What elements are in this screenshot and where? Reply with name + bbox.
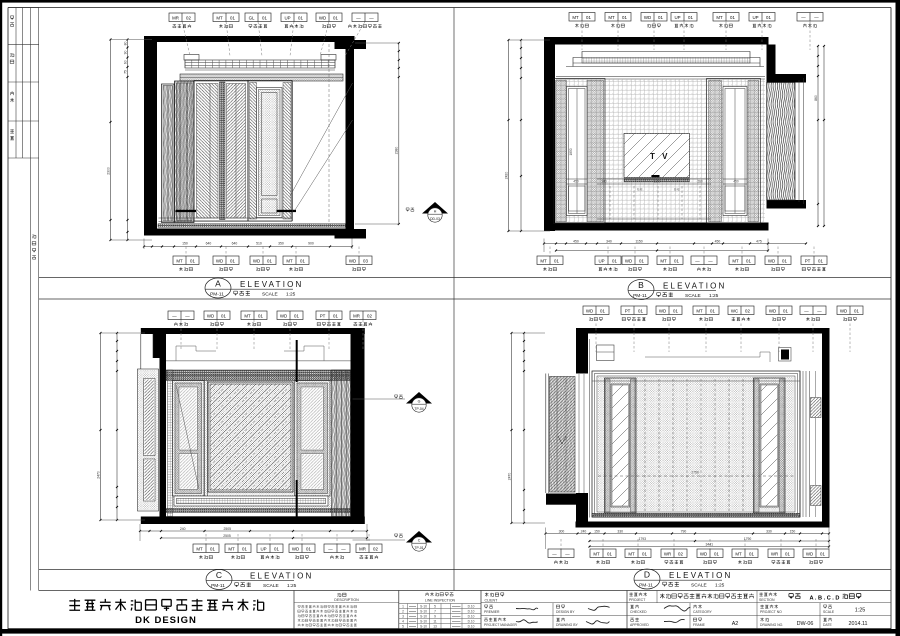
svg-text:01: 01 [306, 546, 311, 551]
svg-text:2380: 2380 [395, 147, 399, 155]
svg-text:2750: 2750 [691, 471, 699, 475]
svg-text:01: 01 [607, 551, 612, 556]
svg-text:WD: WD [625, 258, 632, 263]
svg-text:ELEVATION: ELEVATION [240, 280, 304, 289]
svg-text:PT: PT [320, 313, 326, 318]
svg-text:WD: WD [216, 258, 223, 263]
svg-text:—: — [341, 546, 346, 551]
svg-text:5: 5 [402, 624, 404, 628]
svg-text:01: 01 [333, 15, 338, 20]
svg-text:01: 01 [612, 258, 617, 263]
svg-text:340: 340 [601, 180, 607, 184]
svg-text:01: 01 [766, 15, 771, 20]
svg-text:TP-04: TP-04 [414, 407, 423, 411]
svg-text:01: 01 [638, 308, 643, 313]
svg-text:S-10: S-10 [420, 604, 427, 608]
svg-text:PREMIER: PREMIER [484, 610, 500, 614]
svg-text:WD: WD [769, 308, 776, 313]
svg-text:S-10: S-10 [420, 609, 427, 613]
svg-text:A . B . C . D: A . B . C . D [810, 595, 840, 601]
svg-text:—: — [185, 313, 190, 318]
svg-text:2420: 2420 [504, 172, 508, 180]
svg-text:D.10: D.10 [468, 624, 475, 628]
svg-text:MT: MT [696, 308, 703, 313]
svg-text:2014.11: 2014.11 [848, 621, 867, 627]
svg-text:260: 260 [697, 180, 703, 184]
svg-text:S-10: S-10 [420, 619, 427, 623]
svg-text:01: 01 [818, 258, 823, 263]
svg-text:01: 01 [258, 313, 263, 318]
svg-text:1: 1 [402, 604, 404, 608]
svg-text:SCALE: SCALE [685, 293, 701, 299]
svg-text:01: 01 [230, 258, 235, 263]
svg-text:—: — [565, 551, 570, 556]
svg-text:1790: 1790 [744, 537, 752, 541]
svg-text:240: 240 [180, 527, 186, 531]
svg-text:SCALE: SCALE [823, 610, 835, 614]
svg-text:2505: 2505 [223, 534, 231, 538]
svg-text:DRAWING BY: DRAWING BY [556, 623, 578, 627]
svg-text:4: 4 [402, 619, 404, 623]
svg-text:MT: MT [216, 15, 223, 20]
svg-text:01: 01 [749, 551, 754, 556]
svg-text:1:25: 1:25 [287, 583, 297, 589]
svg-text:MT: MT [608, 15, 615, 20]
svg-text:—: — [552, 551, 557, 556]
svg-text:01: 01 [673, 308, 678, 313]
svg-text:01: 01 [333, 313, 338, 318]
svg-text:—: — [695, 258, 700, 263]
svg-text:1150: 1150 [635, 239, 642, 243]
svg-text:01: 01 [785, 551, 790, 556]
svg-text:B: B [638, 280, 644, 290]
svg-text:01: 01 [674, 258, 679, 263]
svg-text:D.10: D.10 [468, 604, 475, 608]
svg-text:UP: UP [674, 15, 680, 20]
svg-text:60: 60 [123, 60, 127, 64]
svg-text:WD: WD [644, 15, 651, 20]
svg-text:—: — [801, 15, 806, 20]
svg-text:640: 640 [232, 241, 238, 245]
svg-text:D.10: D.10 [468, 619, 475, 623]
svg-text:D.10: D.10 [468, 614, 475, 618]
svg-text:WC: WC [731, 308, 738, 313]
svg-text:9: 9 [434, 614, 436, 618]
svg-text:—: — [817, 308, 822, 313]
svg-text:WD: WD [700, 551, 707, 556]
svg-text:GL: GL [249, 15, 255, 20]
svg-text:PROJECT: PROJECT [629, 598, 646, 602]
svg-text:01: 01 [730, 15, 735, 20]
svg-text:13: 13 [433, 624, 437, 628]
svg-text:01: 01 [658, 15, 663, 20]
svg-text:—: — [172, 313, 177, 318]
svg-text:150: 150 [182, 241, 188, 245]
svg-text:1793: 1793 [638, 537, 646, 541]
svg-text:450: 450 [715, 239, 721, 243]
svg-text:—: — [369, 15, 374, 20]
svg-text:7: 7 [434, 609, 436, 613]
svg-text:APPROVED: APPROVED [630, 623, 649, 627]
svg-text:01: 01 [230, 15, 235, 20]
svg-text:MT: MT [732, 258, 739, 263]
svg-text:150: 150 [594, 529, 600, 533]
svg-text:MT: MT [628, 551, 635, 556]
svg-text:MT: MT [540, 258, 547, 263]
svg-text:01: 01 [639, 258, 644, 263]
svg-text:PM-11: PM-11 [633, 293, 647, 299]
svg-text:—: — [804, 308, 809, 313]
svg-text:01: 01 [294, 313, 299, 318]
svg-text:ELEVATION: ELEVATION [669, 571, 733, 580]
svg-text:MT: MT [660, 258, 667, 263]
svg-text:02: 02 [678, 551, 683, 556]
svg-text:DK DESIGN: DK DESIGN [135, 615, 197, 626]
svg-text:240: 240 [581, 529, 587, 533]
svg-text:C: C [216, 570, 222, 580]
svg-text:MT: MT [176, 258, 183, 263]
svg-text:80: 80 [123, 42, 127, 46]
svg-text:2300: 2300 [106, 167, 110, 175]
svg-text:S-10: S-10 [420, 624, 427, 628]
svg-text:CLIENT: CLIENT [485, 598, 499, 602]
svg-text:WR: WR [664, 551, 671, 556]
svg-text:01: 01 [274, 546, 279, 551]
svg-text:01: 01 [267, 258, 272, 263]
svg-text:PROJECT NO: PROJECT NO [760, 610, 782, 614]
svg-text:300: 300 [559, 529, 565, 533]
svg-text:1:25: 1:25 [286, 292, 296, 298]
svg-text:03: 03 [363, 258, 368, 263]
svg-text:MT: MT [244, 313, 251, 318]
svg-text:475: 475 [756, 239, 762, 243]
svg-text:PM-11: PM-11 [211, 583, 225, 589]
svg-text:MT: MT [716, 15, 723, 20]
svg-text:MR: MR [172, 15, 179, 20]
svg-text:PROJECT MANAGER: PROJECT MANAGER [484, 623, 518, 627]
svg-text:ELEVATION: ELEVATION [250, 571, 314, 580]
svg-text:CATEGORY: CATEGORY [693, 610, 712, 614]
svg-text:640: 640 [206, 241, 212, 245]
svg-text:UP: UP [598, 258, 604, 263]
svg-text:WD: WD [586, 308, 593, 313]
svg-text:01: 01 [554, 258, 559, 263]
svg-text:860: 860 [814, 95, 818, 101]
svg-text:01: 01 [782, 258, 787, 263]
svg-text:—: — [328, 546, 333, 551]
svg-text:330: 330 [617, 529, 623, 533]
svg-text:S-10: S-10 [420, 614, 427, 618]
svg-text:DATE: DATE [823, 623, 833, 627]
svg-text:WR: WR [771, 551, 778, 556]
svg-text:MT: MT [228, 546, 235, 551]
svg-text:02: 02 [186, 15, 191, 20]
svg-text:510: 510 [256, 241, 262, 245]
svg-text:01: 01 [714, 551, 719, 556]
svg-text:MT: MT [196, 546, 203, 551]
svg-text:900: 900 [308, 241, 314, 245]
svg-text:01: 01 [300, 258, 305, 263]
svg-text:01: 01 [783, 308, 788, 313]
svg-text:01: 01 [688, 15, 693, 20]
svg-text:TP-01: TP-01 [414, 546, 423, 550]
svg-text:01: 01 [710, 308, 715, 313]
svg-text:CHECKED: CHECKED [630, 610, 647, 614]
svg-text:MR: MR [353, 313, 360, 318]
svg-text:DESIGN BY: DESIGN BY [556, 610, 575, 614]
svg-text:01: 01 [854, 308, 859, 313]
svg-text:01: 01 [642, 551, 647, 556]
svg-text:MR: MR [359, 546, 366, 551]
svg-text:330: 330 [766, 529, 772, 533]
svg-text:PT: PT [625, 308, 631, 313]
svg-text:—: — [356, 15, 361, 20]
svg-text:SCALE: SCALE [263, 583, 279, 589]
svg-text:SCALE: SCALE [691, 583, 707, 589]
svg-text:—: — [814, 15, 819, 20]
svg-text:ELEVATION: ELEVATION [663, 281, 727, 290]
svg-text:UP: UP [752, 15, 758, 20]
svg-text:01: 01 [262, 15, 267, 20]
svg-text:T V: T V [650, 152, 670, 161]
svg-text:01: 01 [622, 15, 627, 20]
svg-text:01: 01 [298, 15, 303, 20]
svg-text:790: 790 [681, 529, 687, 533]
svg-text:WD: WD [349, 258, 356, 263]
svg-text:MT: MT [735, 551, 742, 556]
svg-text:01: 01 [746, 258, 751, 263]
svg-text:DRAWING NO.: DRAWING NO. [760, 623, 783, 627]
svg-text:DESCRIPTION: DESCRIPTION [334, 598, 359, 602]
svg-text:G: G [418, 400, 421, 404]
svg-text:WD: WD [319, 15, 326, 20]
svg-text:01: 01 [190, 258, 195, 263]
svg-text:WD: WD [806, 551, 813, 556]
svg-text:PM-11: PM-11 [210, 291, 224, 297]
svg-text:UP: UP [284, 15, 290, 20]
svg-text:340: 340 [606, 239, 612, 243]
svg-text:3441: 3441 [705, 542, 713, 546]
svg-text:—: — [708, 258, 713, 263]
svg-text:01: 01 [586, 15, 591, 20]
svg-text:3: 3 [402, 614, 404, 618]
svg-text:01: 01 [242, 546, 247, 551]
svg-text:UP: UP [260, 546, 266, 551]
svg-text:WD: WD [280, 313, 287, 318]
svg-text:A2: A2 [732, 621, 739, 627]
svg-text:2505: 2505 [223, 527, 231, 531]
svg-text:D.10: D.10 [468, 609, 475, 613]
svg-text:90: 90 [123, 51, 127, 55]
svg-text:450: 450 [573, 180, 579, 184]
svg-text:LINE INSPECTION: LINE INSPECTION [425, 599, 456, 603]
svg-text:5: 5 [434, 604, 436, 608]
svg-text:C: C [418, 539, 421, 543]
svg-text:A: A [215, 279, 221, 289]
svg-text:MT: MT [286, 258, 293, 263]
svg-text:SECTION: SECTION [759, 598, 775, 602]
svg-text:450: 450 [733, 180, 739, 184]
svg-text:01: 01 [600, 308, 605, 313]
svg-text:75: 75 [123, 70, 127, 74]
svg-text:WD: WD [840, 308, 847, 313]
svg-text:MT: MT [593, 551, 600, 556]
svg-text:DW-06: DW-06 [797, 621, 814, 627]
svg-text:02: 02 [367, 313, 372, 318]
svg-text:E-E: E-E [674, 188, 679, 192]
svg-text:2: 2 [402, 609, 404, 613]
svg-text:1:25: 1:25 [855, 608, 866, 614]
svg-text:MT: MT [572, 15, 579, 20]
svg-text:WD: WD [253, 258, 260, 263]
svg-text:450: 450 [573, 239, 579, 243]
svg-text:WD: WD [659, 308, 666, 313]
svg-text:1:25: 1:25 [715, 583, 725, 589]
svg-text:1:25: 1:25 [709, 293, 719, 299]
svg-text:WD: WD [207, 313, 214, 318]
svg-text:150: 150 [790, 529, 796, 533]
svg-text:SCALE: SCALE [262, 292, 278, 298]
svg-text:1150: 1150 [654, 180, 661, 184]
svg-text:D: D [644, 570, 650, 580]
svg-text:2470: 2470 [507, 473, 511, 481]
svg-text:02: 02 [373, 546, 378, 551]
svg-text:1850: 1850 [569, 148, 573, 155]
svg-text:01: 01 [221, 313, 226, 318]
svg-text:PT: PT [805, 258, 811, 263]
svg-text:02: 02 [745, 308, 750, 313]
svg-text:H: H [434, 210, 437, 214]
svg-text:01: 01 [820, 551, 825, 556]
svg-text:E-E: E-E [637, 188, 642, 192]
svg-text:11: 11 [433, 619, 437, 623]
svg-text:DD-03: DD-03 [430, 217, 440, 221]
svg-text:WD: WD [768, 258, 775, 263]
svg-text:01: 01 [210, 546, 215, 551]
svg-text:WD: WD [292, 546, 299, 551]
svg-text:2470: 2470 [96, 471, 100, 479]
svg-text:350: 350 [278, 241, 284, 245]
svg-text:PM-11: PM-11 [639, 582, 653, 588]
svg-text:FRAME: FRAME [693, 623, 706, 627]
